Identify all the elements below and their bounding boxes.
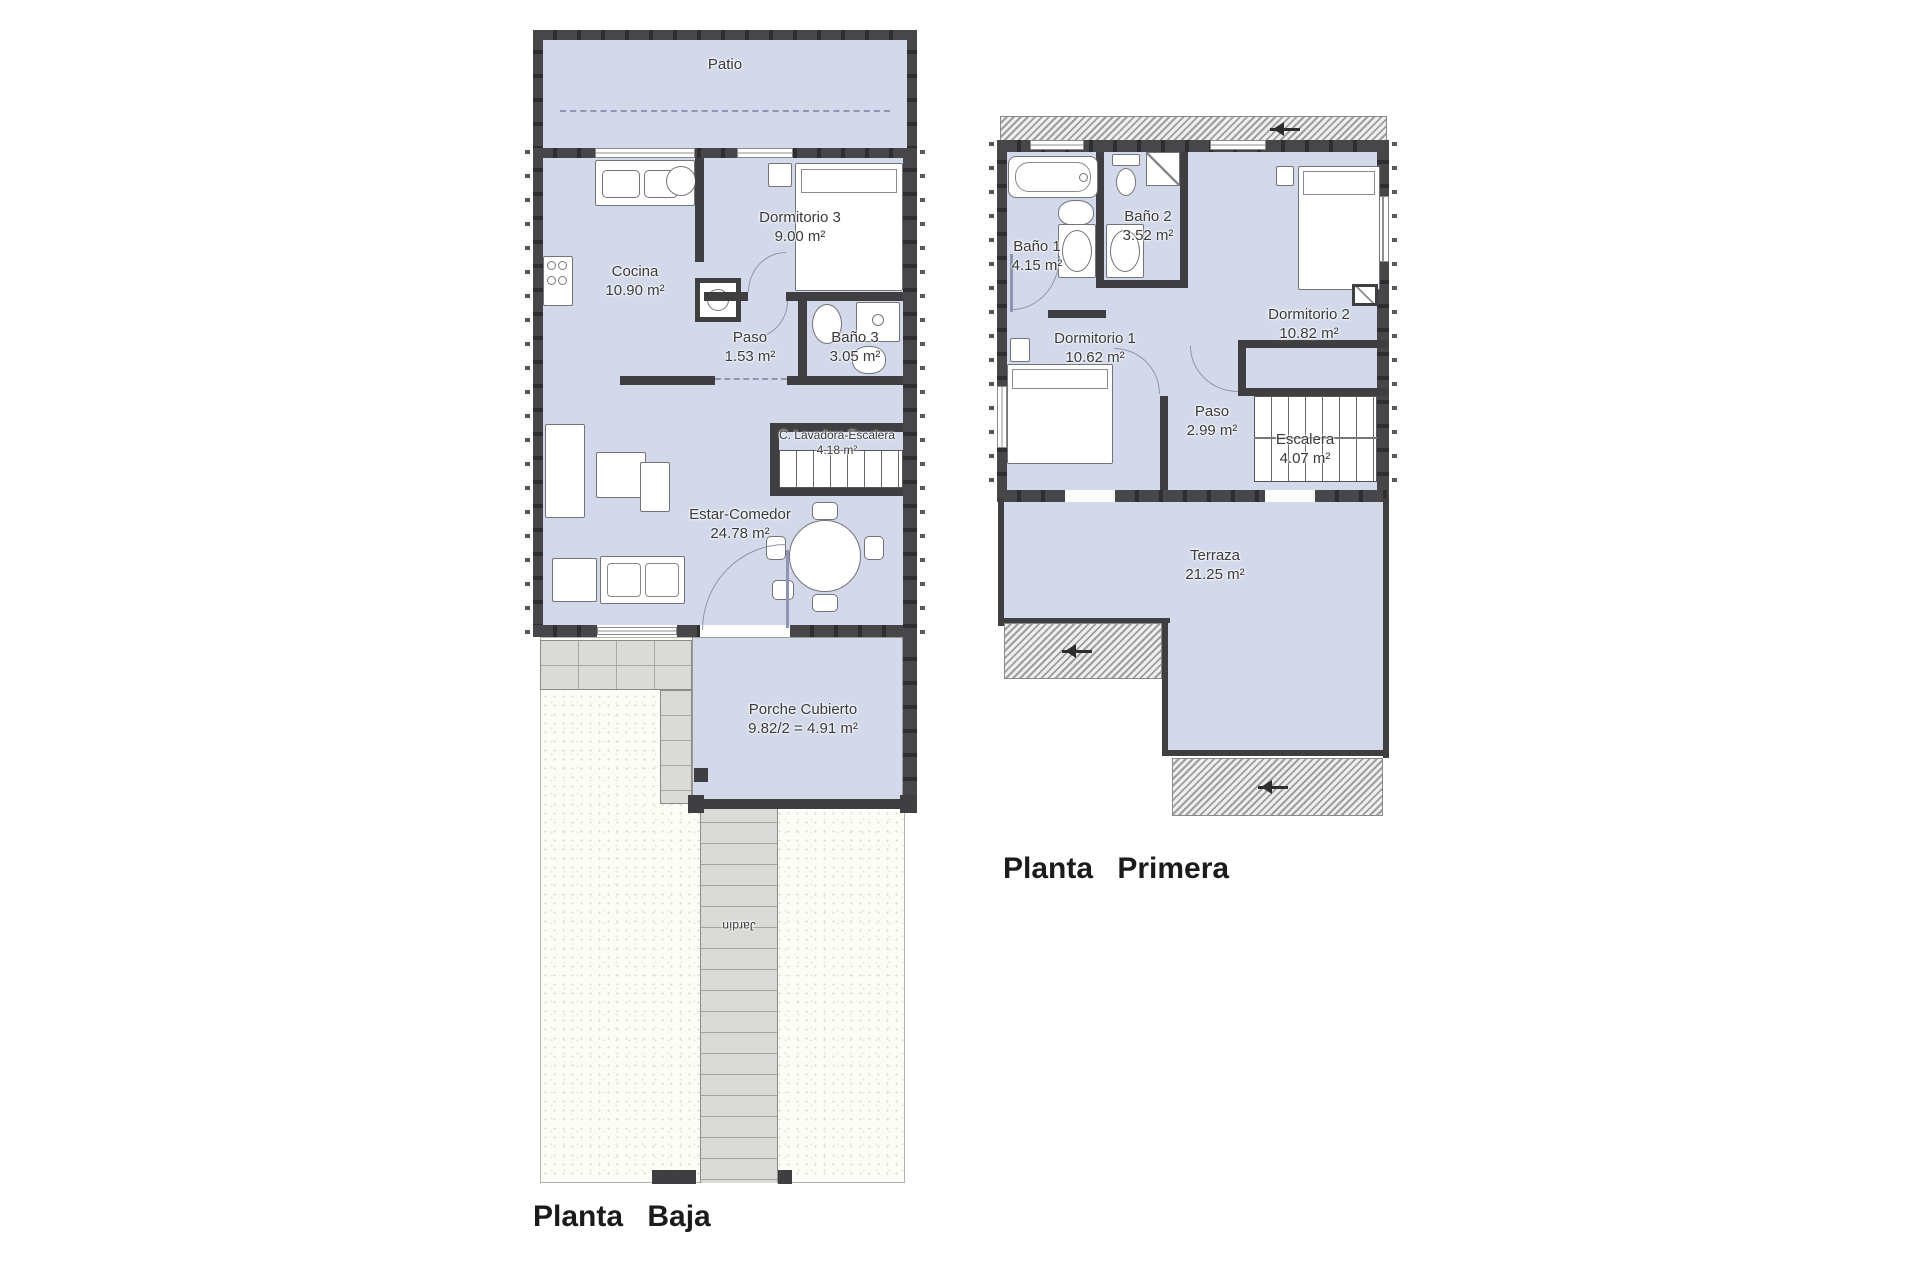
lavadora-label: C. Lavadora-Escalera 4.18 m² xyxy=(772,428,902,458)
terraza-label: Terraza 21.25 m² xyxy=(1140,546,1290,584)
room-area: 4.18 m² xyxy=(772,443,902,458)
dorm1-pillow xyxy=(1012,369,1108,389)
room-name: Baño 2 xyxy=(1098,207,1198,226)
paso-pb-label: Paso 1.53 m² xyxy=(700,328,800,366)
dormitorio1-label: Dormitorio 1 10.62 m² xyxy=(1015,329,1175,367)
porch-wall-bottom xyxy=(692,799,917,809)
terraza-ext-wall-left xyxy=(1162,622,1168,756)
bano3-shower-drain xyxy=(872,314,884,326)
room-name: Escalera xyxy=(1250,430,1360,449)
bathtub xyxy=(1008,156,1098,198)
sofa-cushion xyxy=(645,563,679,597)
ff-wall-bottom-c xyxy=(1315,490,1389,502)
porch-wall-right xyxy=(903,637,917,807)
dining-chair xyxy=(812,594,838,612)
ff-hatch-ticks-left xyxy=(989,142,994,500)
wall-corridor-a xyxy=(620,376,715,385)
sofa-cushion xyxy=(607,563,641,597)
bano1-toilet xyxy=(1058,200,1094,226)
bano2-label: Baño 2 3.52 m² xyxy=(1098,207,1198,245)
dorm3-nightstand xyxy=(768,163,792,187)
room-name: Terraza xyxy=(1140,546,1290,565)
porch-post-right xyxy=(900,795,917,813)
living-window xyxy=(597,627,677,635)
room-name: Paso xyxy=(700,328,800,347)
room-area: 10.90 m² xyxy=(560,281,710,300)
dorm1-bed xyxy=(1007,364,1113,464)
escalera-label: Escalera 4.07 m² xyxy=(1250,430,1360,468)
terraza-wall-left xyxy=(998,498,1004,626)
bano3-label: Baño 3 3.05 m² xyxy=(805,328,905,366)
bano1-window xyxy=(1030,140,1084,150)
terraza-extension xyxy=(1168,622,1383,756)
room-area: 3.05 m² xyxy=(805,347,905,366)
estar-label: Estar-Comedor 24.78 m² xyxy=(660,505,820,543)
room-area: 3.52 m² xyxy=(1098,226,1198,245)
ff-wall-bottom-a xyxy=(997,490,1065,502)
porch-door-leaf xyxy=(786,550,789,628)
dormitorio3-window xyxy=(737,148,793,158)
room-area: 10.82 m² xyxy=(1229,324,1389,343)
room-name: Baño 3 xyxy=(805,328,905,347)
room-area: 24.78 m² xyxy=(660,524,820,543)
garden-walkway-steps xyxy=(700,802,778,1183)
room-area: 4.15 m² xyxy=(987,256,1087,275)
first-floor-title: Planta Primera xyxy=(1003,852,1229,886)
paved-terrace-band xyxy=(540,640,692,690)
floor-plan-canvas: Jardín Patio xyxy=(0,0,1920,1280)
room-area: 2.99 m² xyxy=(1162,421,1262,440)
wall-dorm3-bottom-b xyxy=(786,292,903,301)
house-wall-bottom-a xyxy=(533,625,597,637)
room-name: Baño 1 xyxy=(987,237,1087,256)
bano2-shower xyxy=(1146,152,1180,186)
room-area: 4.07 m² xyxy=(1250,449,1360,468)
cocina-label: Cocina 10.90 m² xyxy=(560,262,710,300)
house-wall-right xyxy=(903,148,917,637)
kitchen-boiler xyxy=(666,166,696,196)
house-wall-bottom-b xyxy=(677,625,700,637)
terraza-wall-right xyxy=(1383,498,1389,758)
wall-paso-escalera xyxy=(1238,340,1246,396)
room-name: Cocina xyxy=(560,262,710,281)
duct-box xyxy=(1352,284,1378,306)
room-name: Dormitorio 2 xyxy=(1229,305,1389,324)
patio-dashed-line xyxy=(560,110,890,112)
ground-floor-title: Planta Baja xyxy=(533,1200,711,1234)
wall-escalera-top xyxy=(1246,388,1389,396)
armchair-bottom xyxy=(552,558,597,602)
bathtub-drain xyxy=(1079,173,1088,182)
porch-pillar xyxy=(694,768,708,782)
room-name: Paso xyxy=(1162,402,1262,421)
dorm2-pillow xyxy=(1303,171,1375,195)
room-area: 1.53 m² xyxy=(700,347,800,366)
patio-wall-left xyxy=(533,30,543,148)
bano2-toilet-tank xyxy=(1112,154,1140,166)
stove-burner-icon xyxy=(547,261,556,270)
dorm2-nightstand xyxy=(1276,166,1294,186)
garden-gate-block-left xyxy=(652,1170,696,1184)
ff-wall-bottom-b xyxy=(1115,490,1265,502)
room-area: 21.25 m² xyxy=(1140,565,1290,584)
patio-wall-right xyxy=(907,30,917,148)
house-wall-top xyxy=(533,148,917,158)
garden-label: Jardín xyxy=(700,918,778,933)
patio-label: Patio xyxy=(650,55,800,74)
patio-wall-top xyxy=(533,30,917,40)
terraza-ext-wall-bottom xyxy=(1162,750,1389,756)
wall-dorm3-bottom-a xyxy=(704,292,748,301)
ff-hatch-ticks-right xyxy=(1392,142,1397,500)
slope-arrow-icon xyxy=(1062,650,1092,653)
dining-chair xyxy=(864,536,884,560)
slope-arrow-icon xyxy=(1270,128,1300,131)
room-name: Porche Cubierto xyxy=(728,700,878,719)
house-wall-bottom-c xyxy=(790,625,903,637)
kitchen-window xyxy=(595,148,695,158)
dorm2-window-top xyxy=(1210,140,1266,150)
wall-bano1-bottom xyxy=(1048,310,1106,318)
room-name: Estar-Comedor xyxy=(660,505,820,524)
wall-kitchen-dorm3 xyxy=(695,158,704,262)
dormitorio3-label: Dormitorio 3 9.00 m² xyxy=(720,208,880,246)
stove-burner-icon xyxy=(547,276,556,285)
room-area: 10.62 m² xyxy=(1015,348,1175,367)
bano2-toilet xyxy=(1116,168,1136,196)
dorm2-bed xyxy=(1298,166,1380,290)
sofa-vertical xyxy=(545,424,585,518)
dorm1-window xyxy=(997,386,1007,448)
wall-bano2-bottom xyxy=(1096,280,1188,288)
porche-label: Porche Cubierto 9.82/2 = 4.91 m² xyxy=(728,700,878,738)
armchair-top xyxy=(596,452,646,498)
slope-arrow-icon xyxy=(1258,786,1288,789)
porch-post-left xyxy=(688,795,704,813)
paso-pp-label: Paso 2.99 m² xyxy=(1162,402,1262,440)
sofa-horizontal xyxy=(600,556,685,604)
roof-overhang-top xyxy=(1000,116,1387,142)
dorm3-pillow xyxy=(801,169,897,193)
dormitorio2-label: Dormitorio 2 10.82 m² xyxy=(1229,305,1389,343)
corridor-opening-dashed xyxy=(715,378,787,380)
room-name: Dormitorio 3 xyxy=(720,208,880,227)
room-area: 9.82/2 = 4.91 m² xyxy=(728,719,878,738)
bano1-label: Baño 1 4.15 m² xyxy=(987,237,1087,275)
wall-hatch-ticks-left xyxy=(525,150,530,635)
garden-gate-block-right xyxy=(778,1170,792,1184)
wall-hatch-ticks-right xyxy=(920,150,925,635)
room-area: 9.00 m² xyxy=(720,227,880,246)
paved-side-strip xyxy=(660,690,692,804)
wall-stairroom-bottom xyxy=(770,488,903,496)
kitchen-sink-basin-left xyxy=(602,170,640,198)
room-name: Dormitorio 1 xyxy=(1015,329,1175,348)
wall-corridor-b xyxy=(787,376,903,385)
house-wall-left xyxy=(533,148,543,637)
room-name: C. Lavadora-Escalera xyxy=(772,428,902,443)
